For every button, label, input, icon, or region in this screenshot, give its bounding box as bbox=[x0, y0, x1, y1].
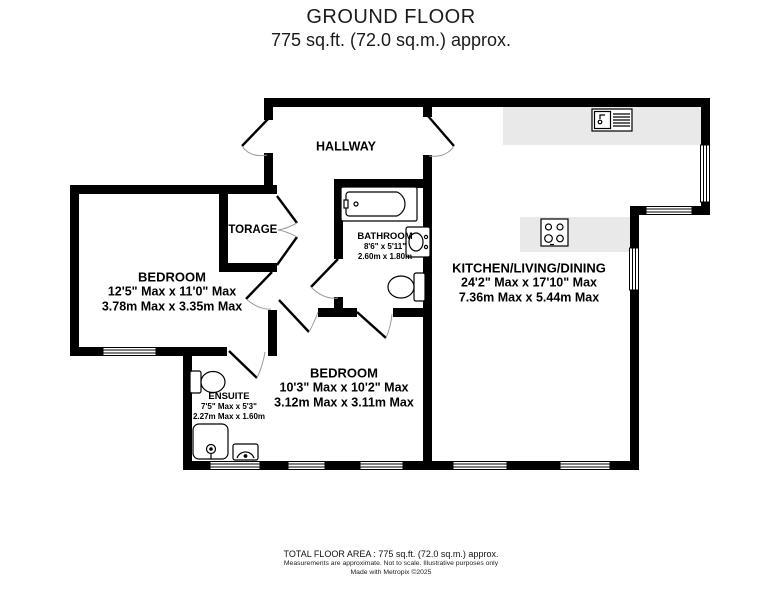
door-bathroom bbox=[311, 259, 338, 298]
door-bedroom-2-right bbox=[357, 312, 392, 338]
room-label-kitchen-living-dining: KITCHEN/LIVING/DINING 24'2" Max x 17'10"… bbox=[452, 261, 606, 306]
kitchen-sink-icon bbox=[592, 109, 632, 131]
window-icon bbox=[701, 145, 710, 202]
room-label-storage: STORAGE bbox=[221, 224, 278, 238]
door-bedroom-2-left bbox=[279, 300, 318, 332]
window-icon bbox=[646, 207, 692, 215]
floorplan-page: GROUND FLOOR 775 sq.ft. (72.0 sq.m.) app… bbox=[0, 0, 782, 600]
room-label-hallway: HALLWAY bbox=[316, 140, 376, 155]
window-icon bbox=[630, 248, 639, 290]
door-ensuite bbox=[229, 351, 265, 378]
plan-footer: TOTAL FLOOR AREA : 775 sq.ft. (72.0 sq.m… bbox=[0, 549, 782, 577]
room-label-bedroom-1: BEDROOM 12'5" Max x 11'0" Max 3.78m Max … bbox=[102, 270, 242, 315]
window-icon bbox=[360, 462, 403, 470]
total-floor-area: TOTAL FLOOR AREA : 775 sq.ft. (72.0 sq.m… bbox=[0, 549, 782, 559]
room-label-ensuite: ENSUITE 7'5" Max x 5'3" 2.27m Max x 1.60… bbox=[193, 391, 265, 421]
disclaimer: Measurements are approximate. Not to sca… bbox=[0, 559, 782, 568]
toilet-icon bbox=[388, 273, 425, 301]
washbasin-icon bbox=[233, 444, 258, 460]
door-storage-double bbox=[277, 196, 297, 265]
door-bedroom-1 bbox=[246, 272, 272, 309]
toilet-icon bbox=[190, 371, 225, 393]
hob-icon bbox=[541, 219, 568, 246]
credit: Made with Metropix ©2025 bbox=[0, 568, 782, 577]
window-icon bbox=[103, 348, 156, 356]
door-entrance bbox=[242, 119, 268, 156]
bathtub-icon bbox=[341, 187, 417, 221]
door-kitchen bbox=[428, 116, 454, 156]
window-icon bbox=[453, 462, 507, 470]
room-label-bedroom-2: BEDROOM 10'3" Max x 10'2" Max 3.12m Max … bbox=[274, 366, 414, 411]
window-icon bbox=[288, 462, 325, 470]
window-icon bbox=[210, 462, 260, 470]
room-label-bathroom: BATHROOM 8'6" x 5'11" 2.60m x 1.80m bbox=[357, 231, 412, 261]
shower-icon bbox=[193, 424, 228, 459]
window-icon bbox=[560, 462, 610, 470]
